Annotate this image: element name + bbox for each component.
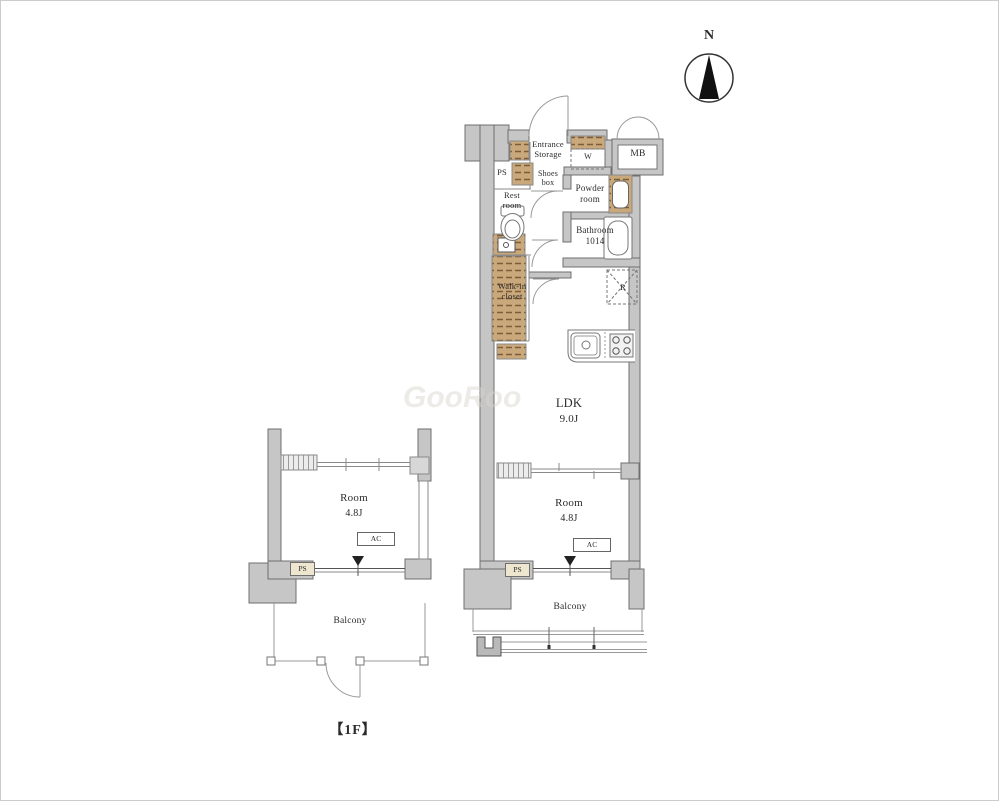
room-partition [497, 463, 621, 479]
compass-needle-icon [699, 55, 719, 99]
label-room-right: Room [547, 497, 591, 510]
door-position-marker [352, 556, 364, 566]
label-bathroom: Bathroom 1014 [567, 225, 623, 246]
left-unit-window [281, 455, 429, 474]
ac-box-left: AC [357, 532, 395, 546]
balcony-gate-arc [326, 663, 360, 697]
balcony-door-left [313, 556, 405, 576]
mb-door-arcs [617, 117, 659, 139]
label-balcony-left: Balcony [323, 616, 377, 627]
compass [685, 54, 733, 102]
compass-north-label: N [697, 28, 721, 44]
label-entrance-storage: Entrance Storage [521, 139, 575, 159]
label-room-right-size: 4.8J [547, 513, 591, 525]
hall-door-arcs [531, 191, 563, 304]
entrance-door-arc [529, 96, 568, 136]
watermark: GooRoo [403, 381, 521, 415]
ac-box-right: AC [573, 538, 611, 552]
toilet-icon [501, 206, 524, 241]
label-washer: W [578, 152, 598, 161]
label-ldk: LDK [548, 396, 590, 411]
label-fridge: R [613, 282, 633, 292]
label-room-left: Room [332, 492, 376, 505]
floorplan-page: N GooRoo Entrance Storage PS Shoes box P… [0, 0, 999, 801]
floor-label: 【1F】 [321, 719, 385, 739]
label-balcony-right: Balcony [543, 602, 597, 613]
label-rest-room: Rest room [495, 190, 529, 210]
ps-box-bottom-left: PS [290, 562, 315, 576]
label-powder-room: Powder room [565, 183, 615, 204]
kitchen-icon [568, 330, 635, 362]
label-walk-in-closet: Walk-in closet [489, 281, 535, 301]
balcony-left-outline [267, 603, 428, 665]
ps-box-bottom-right: PS [505, 563, 530, 577]
label-room-left-size: 4.8J [332, 508, 376, 520]
left-unit-right-wall-thin [419, 481, 428, 559]
balcony-door-right [533, 556, 611, 576]
label-shoes-box: Shoes box [531, 169, 565, 188]
label-ldk-size: 9.0J [548, 413, 590, 426]
label-meter-box: MB [618, 149, 658, 160]
fence-block [477, 637, 501, 656]
meter-box [612, 117, 663, 175]
label-ps-top: PS [490, 167, 514, 177]
door-position-marker [564, 556, 576, 566]
